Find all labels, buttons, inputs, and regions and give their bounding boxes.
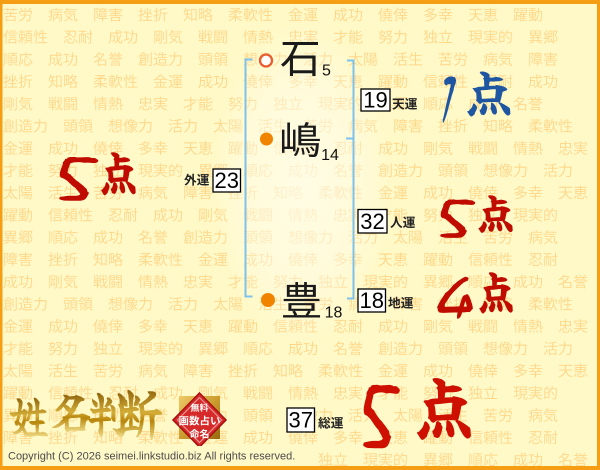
svg-text:Copyright (C) 2026 seimei.link: Copyright (C) 2026 seimei.linkstudio.biz… xyxy=(8,451,295,463)
svg-text:14: 14 xyxy=(321,147,339,164)
svg-text:19: 19 xyxy=(363,88,387,113)
svg-text:23: 23 xyxy=(215,168,239,193)
svg-text:18: 18 xyxy=(325,305,343,322)
svg-text:18: 18 xyxy=(360,288,384,313)
svg-text:37: 37 xyxy=(289,408,313,433)
svg-text:32: 32 xyxy=(360,209,384,234)
svg-text:5: 5 xyxy=(322,63,331,80)
